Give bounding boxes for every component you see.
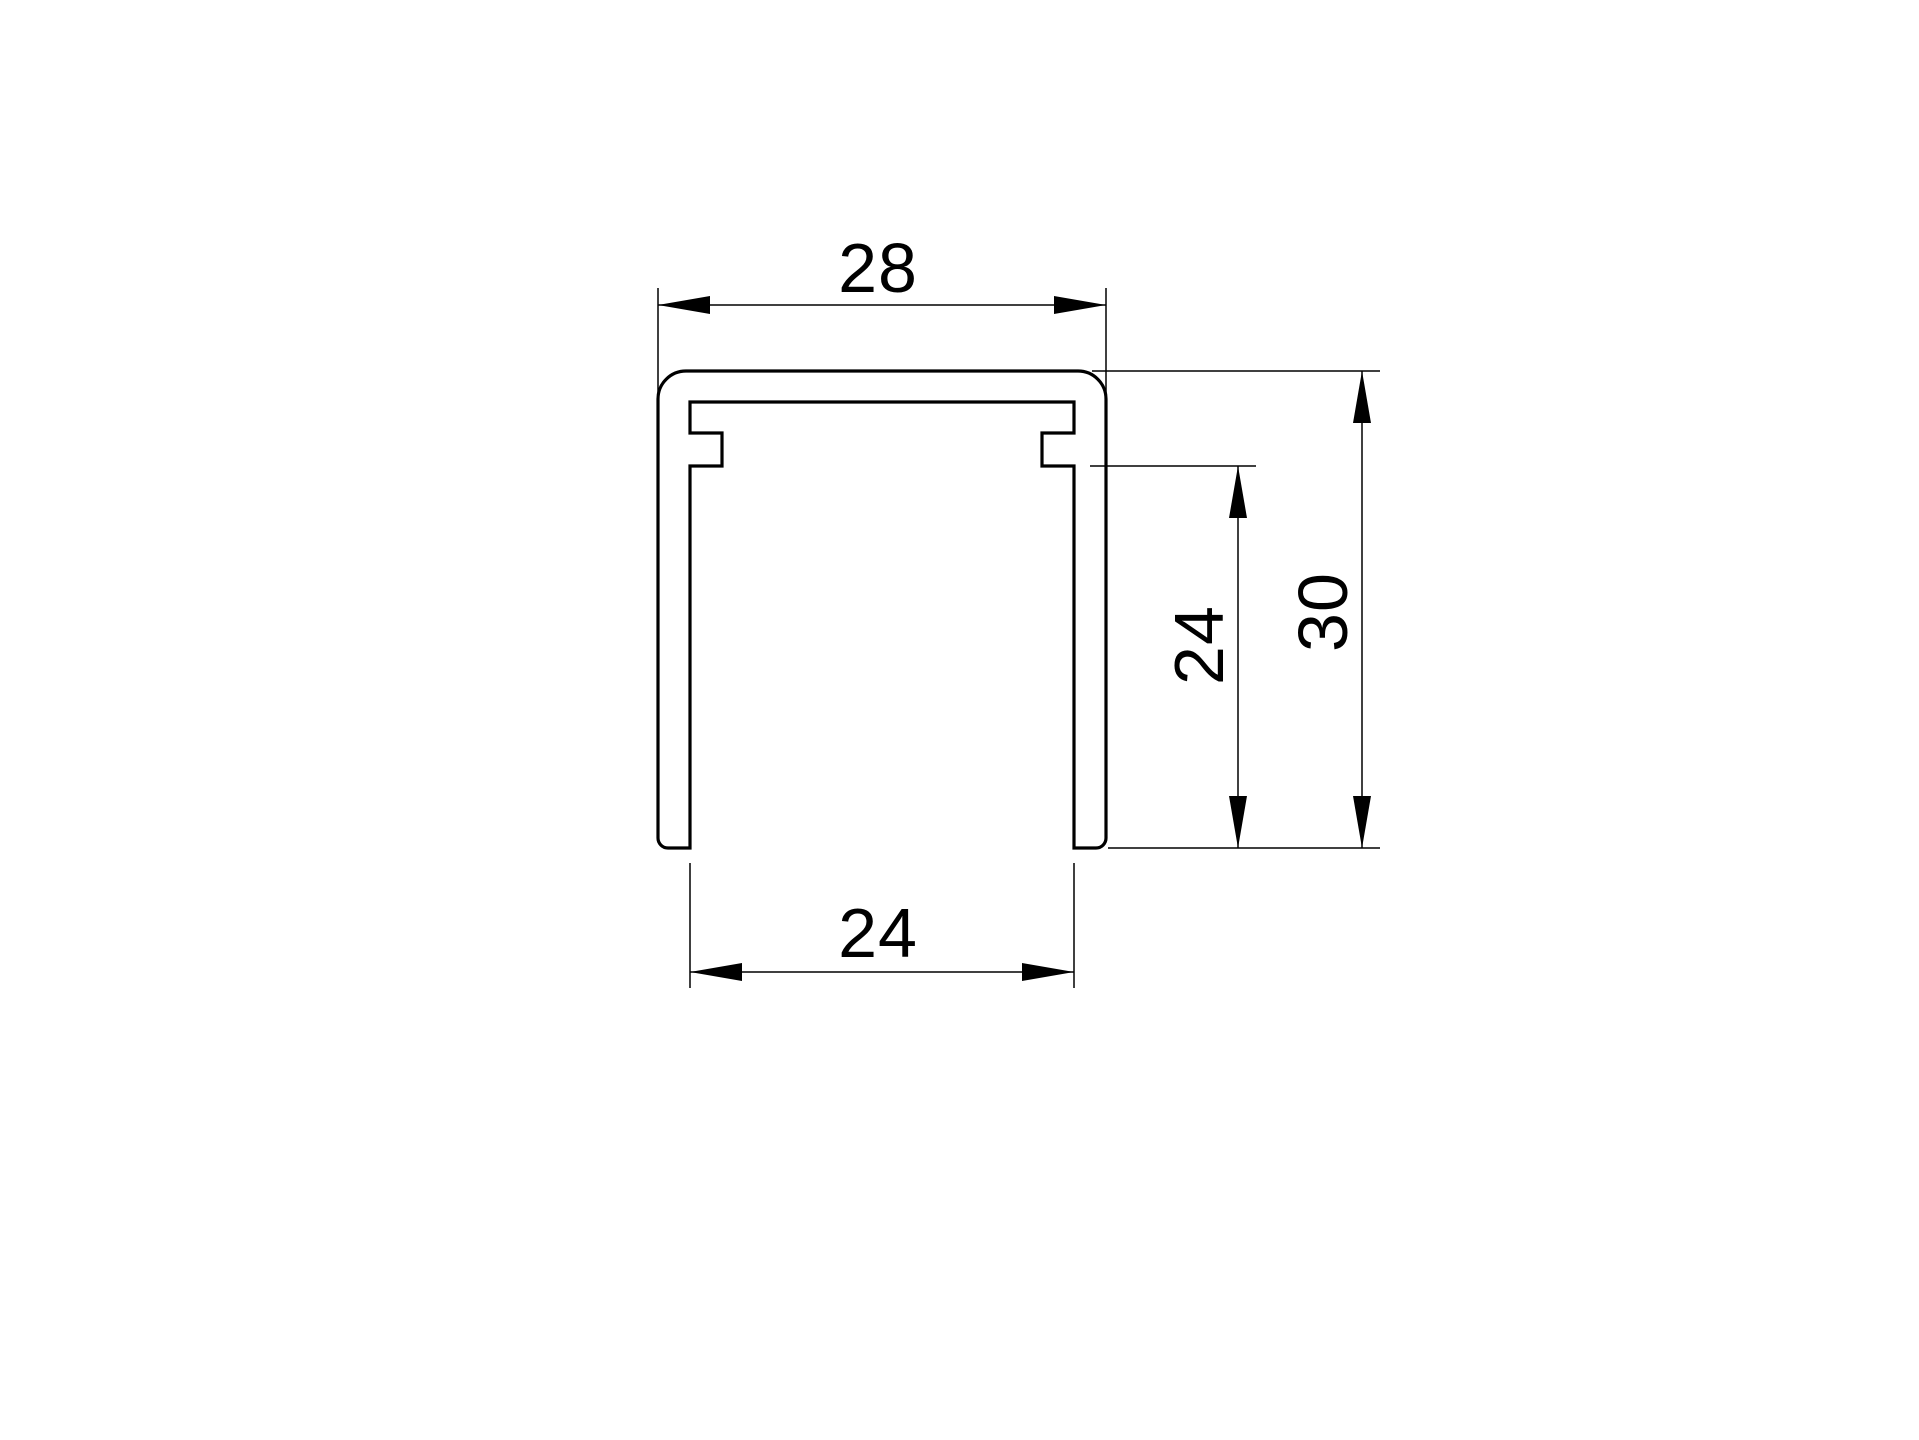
arrowhead-up-icon: [1229, 466, 1247, 518]
profile-outline: [658, 371, 1106, 848]
arrowhead-right-icon: [1022, 963, 1074, 981]
dimension-label-outer-height: 30: [1284, 572, 1362, 652]
arrowhead-left-icon: [658, 296, 710, 314]
dimension-label-inner-width: 24: [838, 894, 918, 972]
arrowhead-left-icon: [690, 963, 742, 981]
profile-group: [658, 371, 1106, 848]
dimension-inner-width: 24: [690, 863, 1074, 988]
cad-canvas: 28 24 24 30: [0, 0, 1919, 1440]
arrowhead-down-icon: [1229, 796, 1247, 848]
dimension-inner-height: 24: [1090, 466, 1256, 848]
drawing-sheet: 28 24 24 30: [0, 0, 1919, 1440]
arrowhead-right-icon: [1054, 296, 1106, 314]
dimension-label-inner-height: 24: [1160, 605, 1238, 685]
dimension-label-outer-width: 28: [838, 229, 918, 307]
arrowhead-down-icon: [1353, 796, 1371, 848]
arrowhead-up-icon: [1353, 371, 1371, 423]
